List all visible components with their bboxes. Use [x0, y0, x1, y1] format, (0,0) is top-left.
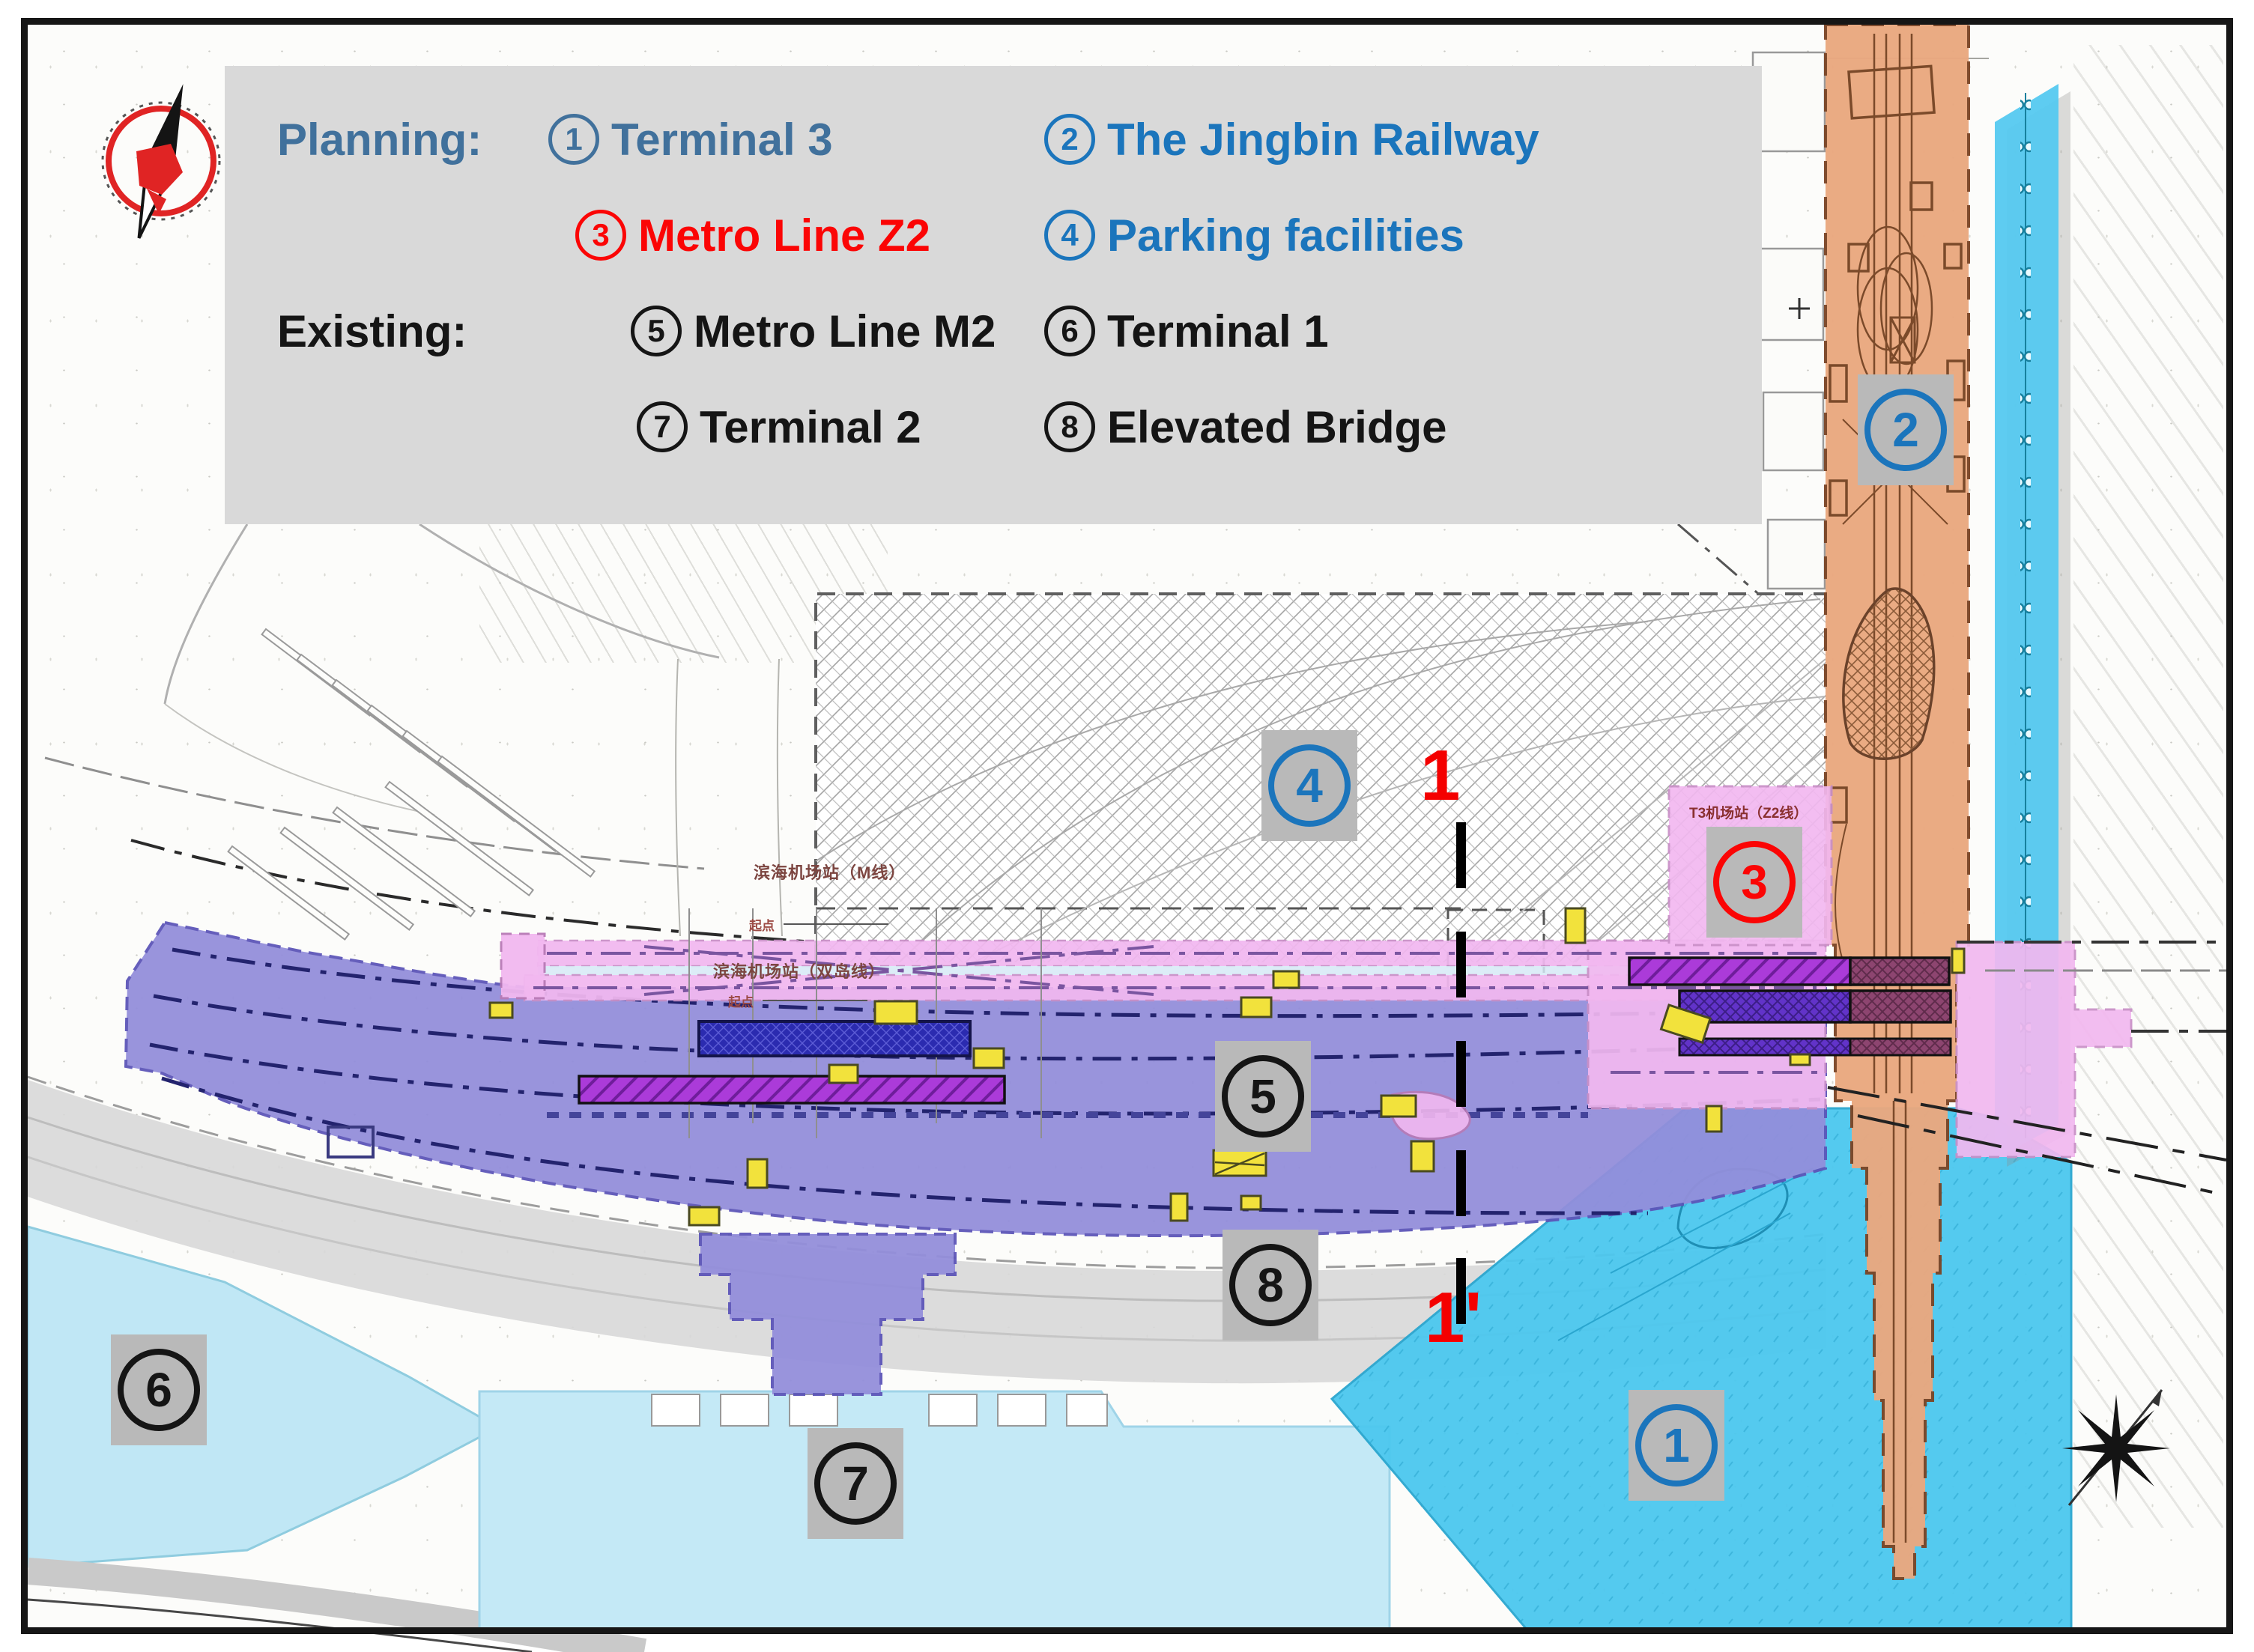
legend-panel: Planning: 1Terminal 3 2The Jingbin Railw… [225, 66, 1762, 524]
map-label-parking: 4 [1261, 730, 1357, 841]
legend-row-1: Planning: 1Terminal 3 2The Jingbin Railw… [225, 91, 1762, 187]
map-label-metro-z2: 3 [1706, 827, 1802, 938]
north-compass-icon [103, 80, 219, 242]
planning-heading: Planning: [225, 114, 548, 165]
origin-note-1: 起点 [749, 915, 775, 934]
legend-row-4: 7Terminal 2 8Elevated Bridge [225, 379, 1762, 475]
m2-platform-purple [579, 1076, 1005, 1103]
origin-note-2: 起点 [728, 991, 754, 1010]
map-label-jingbin-railway: 2 [1858, 374, 1954, 485]
legend-item-parking: 4Parking facilities [1044, 210, 1464, 261]
map-label-terminal-2: 7 [808, 1428, 903, 1539]
circled-2-icon: 2 [1044, 114, 1095, 165]
site-plan-figure: T3机场站（Z2线） [0, 0, 2254, 1652]
legend-item-terminal-1: 6Terminal 1 [1044, 306, 1329, 357]
circled-3-icon: 3 [575, 210, 626, 261]
compass-star-icon [2062, 1390, 2170, 1505]
legend-item-terminal-3: 1Terminal 3 [548, 114, 833, 165]
terminal-2-area [479, 1391, 1390, 1631]
m2-platform-navy [699, 1021, 970, 1056]
map-label-elevated-bridge: 8 [1223, 1230, 1318, 1340]
circled-7-icon: 7 [637, 401, 688, 452]
legend-item-metro-z2: 3Metro Line Z2 [575, 210, 930, 261]
t3-station-note: T3机场站（Z2线） [1689, 804, 1808, 822]
map-label-terminal-3: 1 [1629, 1390, 1724, 1501]
circled-5-icon: 5 [631, 306, 682, 356]
section-marker-start: 1 [1420, 740, 1460, 812]
structure-boxes [1753, 52, 1825, 589]
station-note-double-line: 滨海机场站（双岛线） [713, 959, 885, 983]
map-label-metro-m2: 5 [1215, 1041, 1311, 1152]
existing-heading: Existing: [225, 306, 548, 357]
legend-item-elevated-bridge: 8Elevated Bridge [1044, 401, 1447, 453]
station-note-m-line: 滨海机场站（M线） [754, 860, 906, 884]
circled-4-icon: 4 [1044, 210, 1095, 261]
legend-item-jingbin-railway: 2The Jingbin Railway [1044, 114, 1539, 165]
section-marker-end: 1' [1425, 1282, 1482, 1354]
legend-row-2: 3Metro Line Z2 4Parking facilities [225, 187, 1762, 283]
map-label-terminal-1: 6 [111, 1334, 207, 1445]
legend-row-3: Existing: 5Metro Line M2 6Terminal 1 [225, 283, 1762, 379]
circled-1-icon: 1 [548, 114, 599, 165]
circled-8-icon: 8 [1044, 401, 1095, 452]
circled-6-icon: 6 [1044, 306, 1095, 356]
legend-item-metro-m2: 5Metro Line M2 [631, 306, 996, 357]
parking-stall-rows [228, 629, 595, 940]
legend-item-terminal-2: 7Terminal 2 [637, 401, 921, 453]
